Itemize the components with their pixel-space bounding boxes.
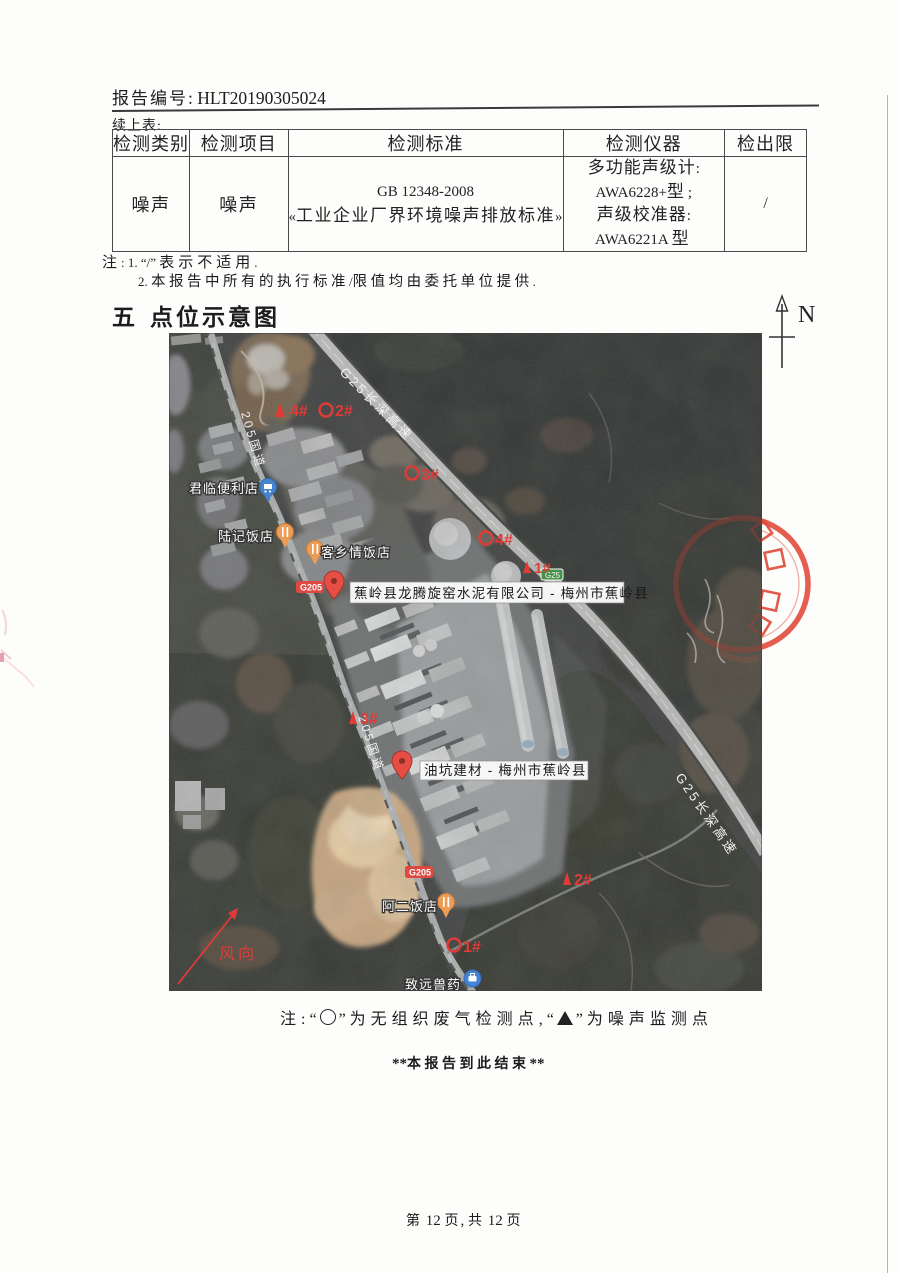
svg-text:N: N [798, 302, 815, 328]
